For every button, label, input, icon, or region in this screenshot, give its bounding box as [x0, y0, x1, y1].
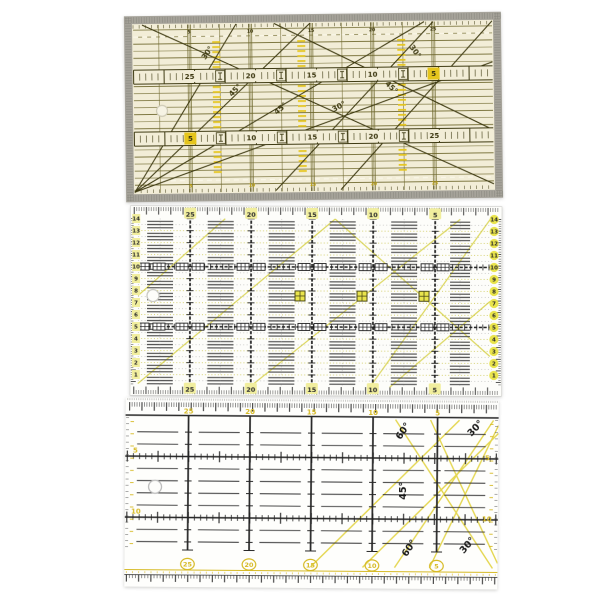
edge-scale-number: 5 [187, 29, 190, 35]
ruler-white-grid-graphic: 2520151052520151051413121110987654321141… [130, 206, 502, 397]
ruler-number: 5 [435, 409, 440, 417]
ruler-number: 25 [185, 386, 195, 394]
ruler-number: 13 [132, 229, 140, 235]
angle-label: 45° [398, 482, 409, 500]
ruler-number: 10 [368, 386, 378, 394]
ruler-number: 20 [245, 408, 255, 416]
ruler-olive-grid: 25201510551015202551015202551015202530°4… [124, 12, 503, 203]
ruler-number: 12 [490, 241, 498, 247]
ruler-number: 1 [492, 373, 496, 379]
ruler-number: 4 [492, 337, 496, 343]
tape-number: 5 [188, 135, 193, 143]
ruler-number: 8 [134, 289, 138, 295]
ruler-number: 10 [132, 265, 140, 271]
ruler-number: 8 [492, 289, 496, 295]
ruler-number: 15 [308, 211, 318, 219]
ruler-number: 10 [490, 265, 498, 271]
edge-scale-number: 5 [189, 183, 192, 189]
edge-scale-number: 20 [369, 27, 375, 33]
ruler-number: 5 [134, 325, 138, 331]
hanging-hole [148, 480, 161, 493]
edge-scale-number: 10 [249, 183, 255, 189]
ruler-number: 5 [485, 454, 490, 462]
ruler-number: 5 [492, 325, 496, 331]
ruler-number: 12 [132, 241, 140, 247]
ruler-number: 10 [482, 515, 492, 523]
ruler-number: 3 [492, 349, 496, 355]
ruler-number: 14 [132, 217, 140, 223]
ruler-number: 6 [492, 313, 496, 319]
edge-scale-number: 15 [310, 182, 316, 188]
ruler-number: 11 [490, 253, 498, 259]
tape-number: 5 [431, 70, 436, 78]
hanging-hole [156, 105, 167, 116]
ruler-number: 1 [134, 373, 138, 379]
edge-scale-number: 25 [432, 180, 438, 186]
ruler-number: 5 [434, 562, 439, 570]
edge-scale-number: 15 [308, 28, 314, 34]
tape-number: 10 [246, 134, 256, 142]
ruler-number: 9 [492, 277, 496, 283]
ruler-number: 25 [186, 211, 196, 219]
edge-scale-number: 25 [430, 26, 436, 32]
ruler-number: 14 [490, 217, 498, 223]
ruler-number: 2 [492, 361, 496, 367]
ruler-number: 9 [134, 277, 138, 283]
ruler-number: 15 [306, 561, 316, 569]
ruler-number: 11 [132, 253, 140, 259]
ruler-number: 25 [184, 407, 194, 415]
ruler-number: 2 [134, 361, 138, 367]
ruler-angle-lines-graphic: 25201510551051025201510560°30°45°60°30° [124, 398, 498, 590]
ruler-number: 3 [134, 349, 138, 355]
ruler-number: 5 [433, 211, 438, 219]
ruler-number: 10 [131, 508, 141, 516]
ruler-number: 6 [134, 313, 138, 319]
ruler-number: 5 [432, 386, 437, 394]
tape-number: 15 [307, 72, 317, 80]
ruler-number: 20 [244, 561, 254, 569]
tape-number: 25 [429, 132, 439, 140]
ruler-olive-graphic: 25201510551015202551015202551015202530°4… [124, 12, 503, 203]
ruler-white-grid: 2520151052520151051413121110987654321141… [130, 206, 502, 397]
ruler-number: 20 [247, 211, 257, 219]
ruler-number: 10 [369, 211, 379, 219]
tape-number: 25 [185, 73, 195, 81]
tape-number: 15 [307, 134, 317, 142]
ruler-number: 10 [367, 562, 377, 570]
product-photo-canvas: 25201510551015202551015202551015202530°4… [0, 0, 600, 600]
ruler-number: 7 [492, 301, 496, 307]
tape-number: 10 [368, 71, 378, 79]
ruler-number: 13 [490, 229, 498, 235]
ruler-angle-lines: 25201510551051025201510560°30°45°60°30° [124, 398, 498, 590]
hanging-hole [147, 290, 159, 302]
ruler-number: 20 [246, 386, 256, 394]
tape-number: 20 [368, 133, 378, 141]
ruler-number: 10 [368, 409, 378, 417]
ruler-number: 7 [134, 301, 138, 307]
ruler-number: 5 [133, 447, 138, 455]
tape-number: 20 [246, 72, 256, 80]
edge-scale-number: 10 [247, 29, 253, 35]
ruler-number: 4 [134, 337, 138, 343]
ruler-number: 15 [307, 386, 317, 394]
ruler-number: 15 [307, 408, 317, 416]
ruler-number: 25 [183, 560, 193, 568]
edge-scale-number: 20 [371, 181, 377, 187]
